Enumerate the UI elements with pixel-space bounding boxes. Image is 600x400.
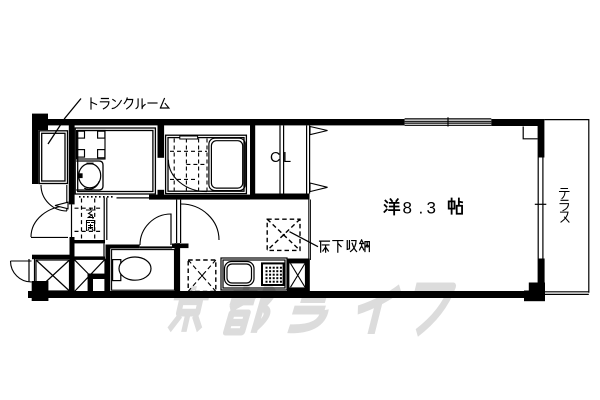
svg-text:.: . xyxy=(419,199,424,218)
svg-text:CL: CL xyxy=(270,150,294,166)
svg-text:3: 3 xyxy=(427,199,436,218)
svg-text:8: 8 xyxy=(403,199,412,218)
